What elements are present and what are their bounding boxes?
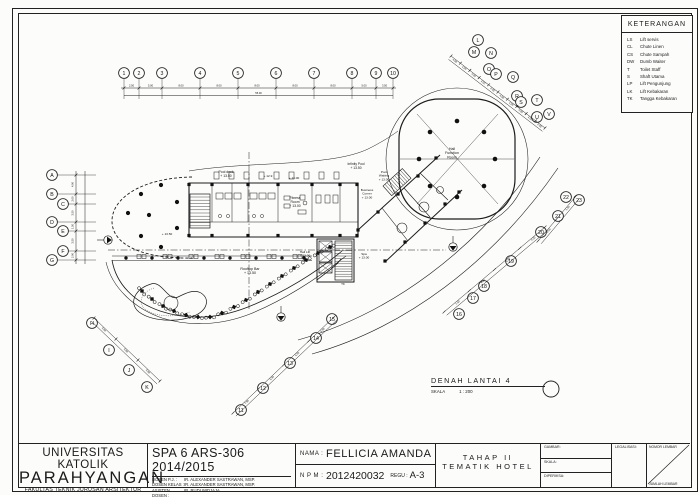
legend-abbr: CS [622, 51, 640, 58]
legend-box: KETERANGAN LSLift servisCLChute LinenCSC… [621, 15, 693, 113]
legend-desc: Dumb Waiter [640, 58, 692, 65]
legend-item: LSLift servis [622, 36, 692, 43]
student-regu: A-3 [410, 470, 425, 481]
student-npm: 2012420032 [326, 470, 384, 482]
legend-abbr: DW [622, 58, 640, 65]
skala-field: SKALA: [541, 459, 611, 474]
diperiksa-field: DIPERIKSA: [541, 473, 611, 487]
legend-item: CLChute Linen [622, 43, 692, 50]
student-cell: NAMA : FELLICIA AMANDA N P M : 201242003… [296, 444, 436, 487]
legend-item: CSChute Sampah [622, 51, 692, 58]
legalisasi-cell: LEGALISASI: [612, 444, 647, 487]
legend-desc: Lift servis [640, 36, 692, 43]
student-name: FELLICIA AMANDA [326, 448, 432, 460]
lecturer-rows: DOSEN P.J.IR. ALEXANDER SASTRAWAN, MSP.D… [152, 477, 291, 499]
legend-item: DWDumb Waiter [622, 58, 692, 65]
legend-title: KETERANGAN [622, 16, 692, 33]
lecturer-row: ASISTEN DOSENIR. RUDI WIDJAJA [152, 488, 291, 499]
sheet-number-cell: NOMOR LEMBAR JUMLAH LEMBAR [647, 444, 690, 487]
title-block: UNIVERSITAS KATOLIK PARAHYANGAN FAKULTAS… [19, 443, 690, 487]
university-cell: UNIVERSITAS KATOLIK PARAHYANGAN FAKULTAS… [19, 444, 148, 487]
legend-desc: Lift Pengunjung [640, 80, 692, 87]
university-name-1: UNIVERSITAS KATOLIK [19, 447, 147, 471]
legend-item: LPLift Pengunjung [622, 80, 692, 87]
scale-label: SKALA [431, 389, 445, 394]
jumlah-lembar-label: JUMLAH LEMBAR [649, 482, 677, 486]
legend-desc: Lift Kebakaran [640, 88, 692, 95]
course-cell: SPA 6 ARS-306 2014/2015 DOSEN P.J.IR. AL… [148, 444, 296, 487]
legend-desc: Chute Sampah [640, 51, 692, 58]
legend-abbr: LK [622, 88, 640, 95]
legend-desc: Shaft Utama [640, 73, 692, 80]
lecturer-role: ASISTEN DOSEN [152, 488, 184, 499]
legend-desc: Toilet Staff [640, 66, 692, 73]
regu-label: REGU : [390, 473, 407, 479]
drawing-title: DENAH LANTAI 4 [431, 376, 545, 387]
legend-item: SShaft Utama [622, 73, 692, 80]
course-title: SPA 6 ARS-306 2014/2015 [152, 446, 291, 477]
gambar-field: GAMBAR: [541, 444, 611, 459]
legend-desc: Tangga Kebakaran [640, 95, 692, 102]
legend-abbr: CL [622, 43, 640, 50]
legend-item: LKLift Kebakaran [622, 88, 692, 95]
phase-line-1: TAHAP II [436, 453, 540, 462]
drawing-title-block: DENAH LANTAI 4 SKALA 1 : 200 [431, 376, 545, 394]
nama-label: NAMA : [300, 451, 326, 457]
legend-item: TToilet Staff [622, 66, 692, 73]
sheet-border-inner [18, 13, 692, 488]
legend-abbr: LP [622, 80, 640, 87]
legend-desc: Chute Linen [640, 43, 692, 50]
phase-line-2: TEMATIK HOTEL [436, 462, 540, 471]
legend-item: TKTangga Kebakaran [622, 95, 692, 102]
drawing-sheet: 12345678910ABCDEFGLMNOPQRSTUV22232120191… [0, 0, 700, 495]
lecturer-name: IR. RUDI WIDJAJA [184, 488, 220, 499]
legend-abbr: S [622, 73, 640, 80]
legend-abbr: T [622, 66, 640, 73]
university-name-2: PARAHYANGAN [19, 471, 147, 486]
sheet-number-diagonal [647, 444, 690, 485]
fields-cell: GAMBAR: SKALA: DIPERIKSA: [541, 444, 612, 487]
legend-abbr: TK [622, 95, 640, 102]
legend-abbr: LS [622, 36, 640, 43]
scale-value: 1 : 200 [459, 389, 472, 394]
phase-cell: TAHAP II TEMATIK HOTEL [436, 444, 541, 487]
nomor-lembar-label: NOMOR LEMBAR [649, 445, 677, 449]
faculty-name: FAKULTAS TEKNIK JURUSAN ARSITEKTUR [19, 487, 147, 493]
npm-label: N P M : [300, 473, 326, 479]
legend-rows: LSLift servisCLChute LinenCSChute Sampah… [622, 33, 692, 103]
